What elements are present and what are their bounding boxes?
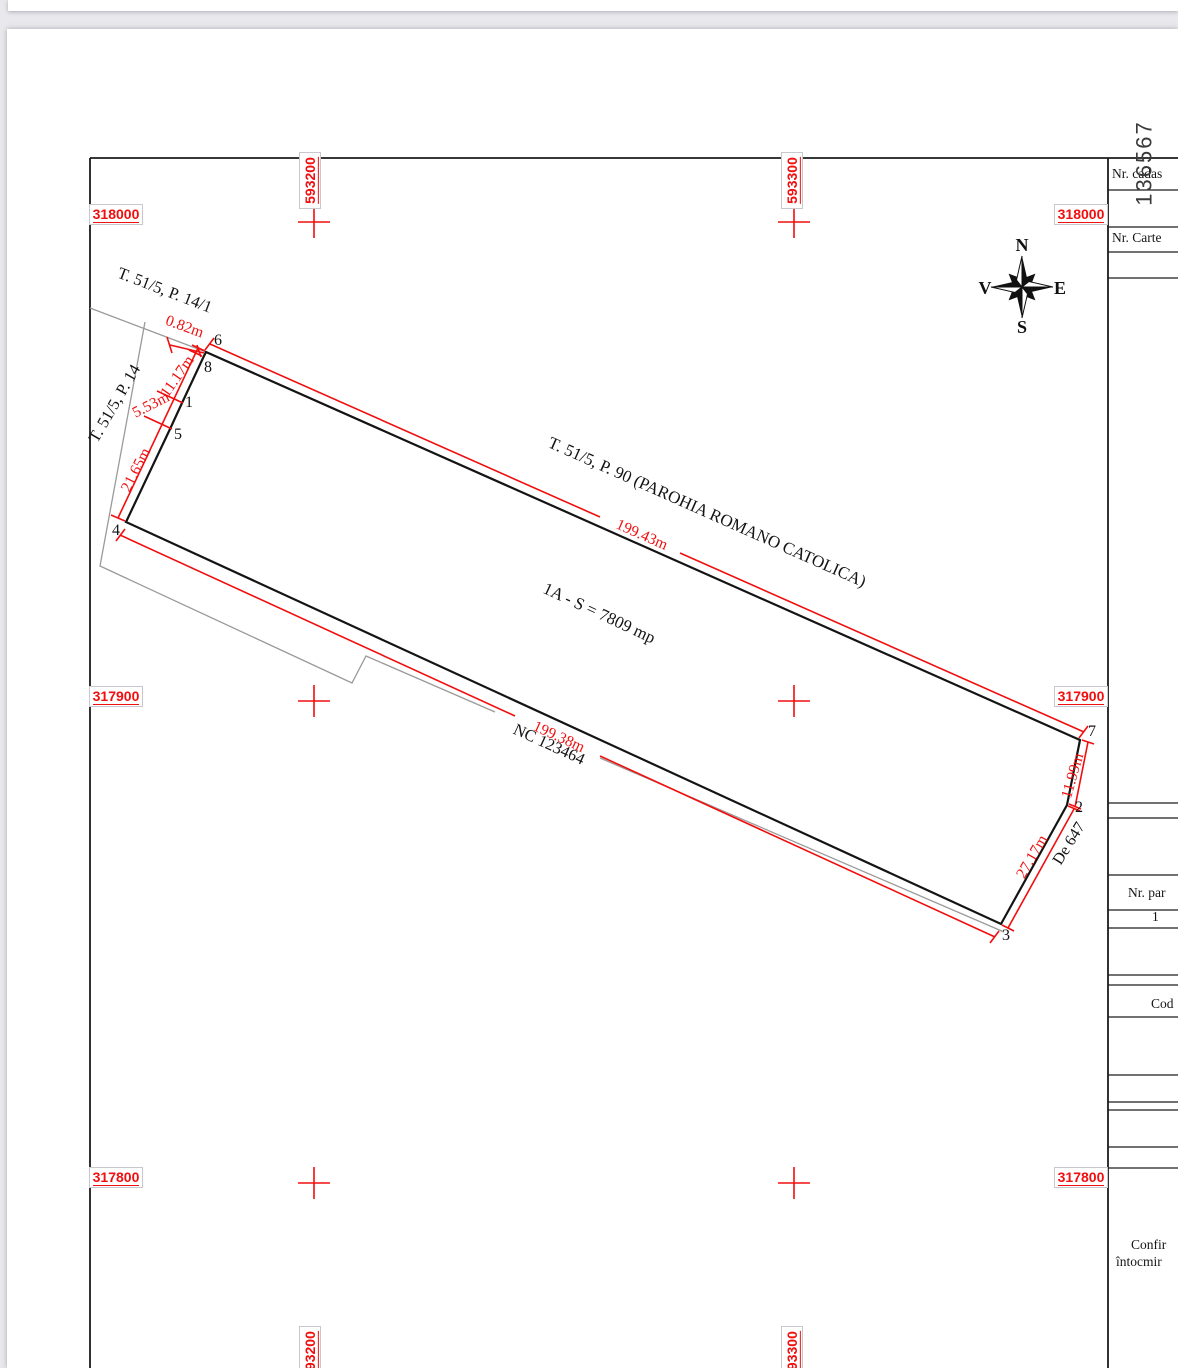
compass-rose: N S E V <box>979 235 1067 337</box>
compass-west-label: V <box>979 278 992 298</box>
neighbor-boundary-nc <box>100 322 1004 932</box>
table-cod-label: Cod <box>1151 996 1174 1012</box>
grid-label-text: 318000 <box>93 206 140 223</box>
dim-27-17-label: 27.17m <box>1013 832 1051 881</box>
point-label-2: 2 <box>1075 799 1083 816</box>
point-label-6: 6 <box>214 332 222 349</box>
grid-label-593200-bottom: 593200 <box>299 1326 321 1368</box>
table-confirm-line1: Confir <box>1131 1237 1166 1253</box>
grid-label-text: 593300 <box>784 157 801 204</box>
cadastral-number: 136567 <box>1130 118 1160 208</box>
compass-cardinal-points <box>991 256 1053 318</box>
grid-crosshair <box>778 685 810 717</box>
grid-label-text: 317900 <box>93 688 140 705</box>
grid-label-317800-left: 317800 <box>89 1167 143 1188</box>
grid-label-317900-right: 317900 <box>1054 686 1108 707</box>
drawing-border <box>90 158 1178 1368</box>
neighbor-top-label: T. 51/5, P. 90 (PAROHIA ROMANO CATOLICA) <box>545 433 869 591</box>
grid-label-593200-top: 593200 <box>299 152 321 209</box>
point-label-4: 4 <box>112 522 120 539</box>
point-label-3: 3 <box>1002 927 1010 944</box>
grid-label-593300-top: 593300 <box>781 152 803 209</box>
info-table-row-lines <box>1108 190 1178 1168</box>
table-parcela-value: 1 <box>1152 909 1159 925</box>
grid-label-317900-left: 317900 <box>89 686 143 707</box>
table-nr-parcela-label: Nr. par <box>1128 885 1166 901</box>
table-nr-carte-label: Nr. Carte <box>1112 230 1162 246</box>
compass-east-label: E <box>1054 278 1066 298</box>
grid-crosshair <box>778 1167 810 1199</box>
compass-north-label: N <box>1016 235 1029 255</box>
cadastral-number-text: 136567 <box>1132 120 1158 205</box>
dim-top-label: 199.43m <box>613 516 670 554</box>
dim-0-82-label: 0.82m <box>163 312 206 341</box>
grid-crosshairs <box>298 206 810 1199</box>
grid-label-text: 593200 <box>302 1331 319 1368</box>
dim-21-65-label: 21.65m <box>118 445 154 495</box>
grid-label-text: 317800 <box>93 1169 140 1186</box>
point-label-8: 8 <box>204 359 212 376</box>
grid-crosshair <box>298 1167 330 1199</box>
point-label-5: 5 <box>174 426 182 443</box>
grid-label-text: 593300 <box>784 1331 801 1368</box>
neighbor-left-upper-label: T. 51/5, P. 14/1 <box>115 263 215 316</box>
grid-label-text: 317900 <box>1058 688 1105 705</box>
grid-label-318000-right: 318000 <box>1054 204 1108 225</box>
point-label-1: 1 <box>185 394 193 411</box>
grid-label-text: 318000 <box>1058 206 1105 223</box>
compass-south-label: S <box>1017 317 1027 337</box>
grid-label-593300-bottom: 593300 <box>781 1326 803 1368</box>
grid-label-text: 593200 <box>302 157 319 204</box>
grid-crosshair <box>298 206 330 238</box>
table-confirm-line2: întocmir <box>1116 1254 1162 1270</box>
grid-crosshair <box>298 685 330 717</box>
parcel-outline <box>126 352 1080 924</box>
grid-label-318000-left: 318000 <box>89 204 143 225</box>
grid-label-text: 317800 <box>1058 1169 1105 1186</box>
pdf-viewport: 199.43m 199.38m 0.82m 11.17m 5.53m 21.65… <box>0 0 1178 1368</box>
cadastral-drawing: 199.43m 199.38m 0.82m 11.17m 5.53m 21.65… <box>0 0 1178 1368</box>
parcel-area-label: 1A - S = 7809 mp <box>540 579 658 648</box>
point-label-7: 7 <box>1088 723 1096 740</box>
dim-11-99-label: 11.99m <box>1058 751 1087 800</box>
grid-label-317800-right: 317800 <box>1054 1167 1108 1188</box>
grid-crosshair <box>778 206 810 238</box>
